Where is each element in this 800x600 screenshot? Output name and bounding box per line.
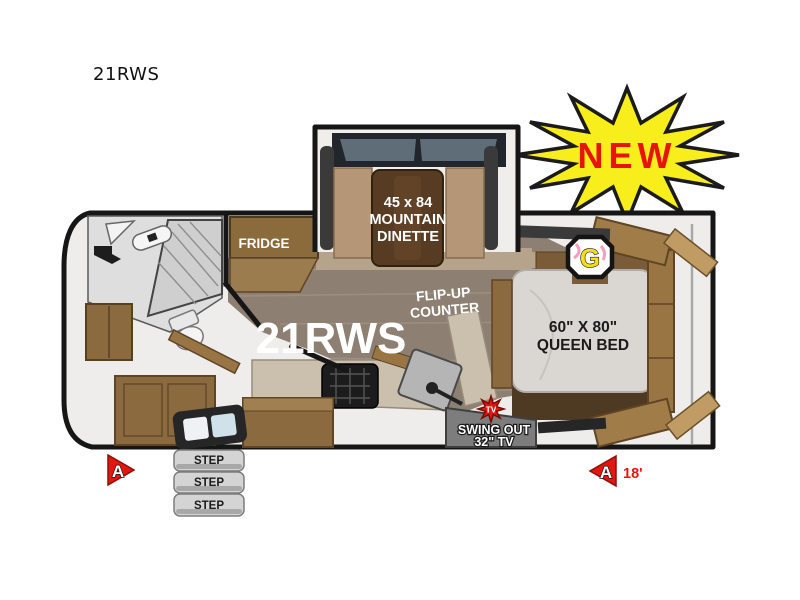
- fridge-label: FRIDGE: [238, 236, 289, 251]
- marker-rear-label: A: [600, 463, 612, 482]
- dinette-label-line3: DINETTE: [377, 229, 439, 245]
- new-starburst: NEW: [515, 88, 739, 222]
- marker-door-label: A: [112, 462, 124, 481]
- model-floor-label: 21RWS: [256, 314, 407, 363]
- entry-steps: STEP STEP STEP: [174, 450, 244, 516]
- floorplan-page: 21RWS NEW: [0, 0, 800, 600]
- step-1: STEP: [174, 450, 244, 471]
- step-2: STEP: [174, 472, 244, 493]
- tv-badge-label: TV: [486, 405, 497, 415]
- wardrobe-column: [648, 250, 674, 412]
- brand-logo: G: [568, 237, 612, 284]
- dinette-bench-left: [334, 168, 372, 258]
- bed-label-line1: 60" X 80": [549, 319, 617, 336]
- step-1-label: STEP: [194, 455, 224, 467]
- marker-rear-side: A 18': [590, 456, 643, 486]
- bed-label-line2: QUEEN BED: [537, 337, 629, 354]
- fridge-cabinet: FRIDGE: [230, 217, 318, 292]
- marker-door-side: A: [108, 455, 134, 485]
- length-label: 18': [623, 466, 643, 482]
- step-3-label: STEP: [194, 500, 224, 512]
- step-2-label: STEP: [194, 477, 224, 489]
- bed-side-cabinet: [492, 280, 512, 388]
- slide-trim-right: [484, 146, 498, 250]
- dinette-label-line1: 45 x 84: [384, 195, 432, 211]
- new-badge-label: NEW: [578, 135, 677, 176]
- tv-label-line2: 32" TV: [474, 435, 514, 449]
- dinette-label-line2: MOUNTAIN: [369, 212, 446, 228]
- slide-trim-left: [320, 146, 334, 250]
- step-3: STEP: [174, 494, 244, 516]
- floorplan-drawing: NEW: [0, 0, 800, 600]
- logo-letter: G: [580, 243, 600, 273]
- dinette-slideout: 45 x 84 MOUNTAIN DINETTE: [315, 127, 518, 266]
- dinette-bench-right: [446, 168, 484, 258]
